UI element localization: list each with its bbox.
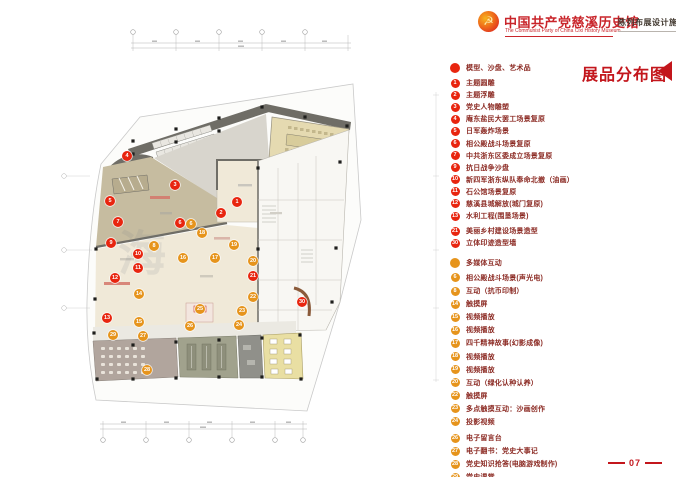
legend-item: 30立体印迹造型墙 xyxy=(444,237,672,249)
legend-number-badge: 5 xyxy=(451,127,460,136)
museum-subtitle: The Communist Party of China Cixi Histor… xyxy=(505,28,613,37)
legend-item: 7中共浙东区委成立场景复原 xyxy=(444,150,672,162)
storage-room xyxy=(238,335,263,378)
legend-number-badge: 2 xyxy=(451,91,460,100)
legend-item: 26电子留言台 xyxy=(444,432,672,445)
legend-number-badge: 14 xyxy=(451,300,460,309)
legend-item-label: 水利工程(围垦场景) xyxy=(466,211,529,221)
legend-number-badge: 24 xyxy=(451,417,460,426)
legend-item-label: 多点触摸互动：沙画创作 xyxy=(466,404,545,414)
legend-number-badge: 30 xyxy=(451,239,460,248)
legend-number-badge: 4 xyxy=(451,115,460,124)
legend-item: 24投影视频 xyxy=(444,415,672,428)
dimension-grid-top xyxy=(131,30,351,51)
legend-number-badge: 17 xyxy=(451,339,460,348)
document-page: 海 43512769101112132130618198161720142225… xyxy=(0,0,676,477)
service-block xyxy=(258,130,349,331)
legend-section-label: 模型、沙盘、艺术品 xyxy=(466,63,531,73)
legend-item: 11石公馆场景复原 xyxy=(444,186,672,198)
legend-item: 4庵东盐民大罢工场景复原 xyxy=(444,113,672,125)
legend-item-label: 视频播放 xyxy=(466,325,495,335)
legend-number-badge: 29 xyxy=(451,473,460,477)
legend-item-label: 党史课堂 xyxy=(466,472,495,477)
legend-number-badge: 12 xyxy=(451,199,460,208)
legend-number-badge: 18 xyxy=(451,352,460,361)
dimension-grid-right xyxy=(433,92,439,382)
legend-item: 21美丽乡村建设场景造型 xyxy=(444,225,672,237)
legend-item-label: 石公馆场景复原 xyxy=(466,187,516,197)
legend-item: 1主题圆雕 xyxy=(444,77,672,89)
legend-item: 2主题浮雕 xyxy=(444,89,672,101)
intro-hall xyxy=(217,160,263,222)
legend-section-label: 多媒体互动 xyxy=(466,258,502,268)
legend-number-badge: 27 xyxy=(451,447,460,456)
small-room xyxy=(186,303,213,322)
legend-number-badge: 6 xyxy=(451,139,460,148)
legend-item: 22触摸屏 xyxy=(444,389,672,402)
legend-number-badge: 9 xyxy=(451,163,460,172)
legend-item-label: 党史人物雕塑 xyxy=(466,102,509,112)
legend-item-label: 立体印迹造型墙 xyxy=(466,238,516,248)
legend-item: 13水利工程(围垦场景) xyxy=(444,210,672,222)
legend-item: 19视频播放 xyxy=(444,363,672,376)
legend-section-header: 多媒体互动 xyxy=(444,256,672,269)
legend-dot-icon xyxy=(450,63,460,73)
page-number: 07 xyxy=(608,458,662,468)
legend-number-badge: 13 xyxy=(451,212,460,221)
workroom xyxy=(178,336,238,378)
classroom xyxy=(93,338,178,381)
legend-number-badge: 19 xyxy=(451,365,460,374)
legend: 模型、沙盘、艺术品1主题圆雕2主题浮雕3党史人物雕塑4庵东盐民大罢工场景复原5日… xyxy=(444,61,672,477)
watermark: 海 xyxy=(118,214,192,284)
legend-item: 23多点触摸互动：沙画创作 xyxy=(444,402,672,415)
legend-item: 8互动（抗币印制） xyxy=(444,285,672,298)
legend-section-header: 模型、沙盘、艺术品 xyxy=(444,61,672,75)
legend-number-badge: 8 xyxy=(451,287,460,296)
legend-item: 17四千精神故事(幻影成像) xyxy=(444,337,672,350)
legend-item-label: 视频播放 xyxy=(466,312,495,322)
legend-number-badge: 16 xyxy=(451,326,460,335)
legend-number-badge: 11 xyxy=(451,187,460,196)
legend-item-label: 电子翻书：党史大事记 xyxy=(466,446,538,456)
legend-number-badge: 26 xyxy=(451,434,460,443)
legend-item-label: 新四军浙东纵队奉命北撤（油画） xyxy=(466,175,574,185)
page-number-rule-right xyxy=(645,462,662,464)
legend-item-label: 电子留言台 xyxy=(466,433,502,443)
legend-number-badge: 10 xyxy=(451,175,460,184)
legend-item-label: 日军轰炸场景 xyxy=(466,126,509,136)
legend-item: 12慈溪县城解放(城门复原) xyxy=(444,198,672,210)
legend-item: 3党史人物雕塑 xyxy=(444,101,672,113)
legend-item-label: 相公殿战斗场景(声光电) xyxy=(466,273,543,283)
legend-item-label: 主题浮雕 xyxy=(466,90,495,100)
office-room xyxy=(263,333,303,379)
legend-item-label: 抗日战争沙盘 xyxy=(466,163,509,173)
legend-item-label: 慈溪县城解放(城门复原) xyxy=(466,199,543,209)
legend-item: 18视频播放 xyxy=(444,350,672,363)
legend-item-label: 投影视频 xyxy=(466,417,495,427)
legend-item: 15视频播放 xyxy=(444,311,672,324)
legend-number-badge: 21 xyxy=(451,227,460,236)
floor-plan xyxy=(0,0,450,477)
legend-number-badge: 23 xyxy=(451,404,460,413)
legend-number-badge: 15 xyxy=(451,313,460,322)
legend-number-badge: 6 xyxy=(451,273,460,282)
legend-item-label: 互动（抗币印制） xyxy=(466,286,524,296)
dimension-grid-bottom xyxy=(100,421,307,442)
legend-item-label: 触摸屏 xyxy=(466,391,488,401)
legend-number-badge: 22 xyxy=(451,391,460,400)
legend-item-label: 美丽乡村建设场景造型 xyxy=(466,226,538,236)
legend-item-label: 视频播放 xyxy=(466,365,495,375)
legend-item-label: 中共浙东区委成立场景复原 xyxy=(466,151,552,161)
legend-item-label: 视频播放 xyxy=(466,352,495,362)
legend-item: 9抗日战争沙盘 xyxy=(444,162,672,174)
legend-item-label: 庵东盐民大罢工场景复原 xyxy=(466,114,545,124)
legend-number-badge: 7 xyxy=(451,151,460,160)
legend-item: 16视频播放 xyxy=(444,324,672,337)
page-number-rule-left xyxy=(608,462,625,464)
party-emblem-icon: ☭ xyxy=(478,11,499,32)
legend-item-label: 相公殿战斗场景复原 xyxy=(466,139,531,149)
legend-item: 5日军轰炸场景 xyxy=(444,125,672,137)
legend-item-label: 互动（绿化认种认养） xyxy=(466,378,538,388)
legend-number-badge: 28 xyxy=(451,460,460,469)
legend-dot-icon xyxy=(450,258,460,268)
legend-number-badge: 20 xyxy=(451,378,460,387)
legend-item: 6相公殿战斗场景复原 xyxy=(444,137,672,149)
document-title: 陈列布展设计施工方案 xyxy=(618,17,676,32)
legend-item: 29党史课堂 xyxy=(444,471,672,477)
legend-number-badge: 1 xyxy=(451,79,460,88)
page-number-value: 07 xyxy=(629,458,641,468)
legend-item-label: 四千精神故事(幻影成像) xyxy=(466,338,543,348)
legend-item: 6相公殿战斗场景(声光电) xyxy=(444,271,672,284)
legend-item: 14触摸屏 xyxy=(444,298,672,311)
legend-item-label: 主题圆雕 xyxy=(466,78,495,88)
legend-item-label: 触摸屏 xyxy=(466,299,488,309)
legend-item-label: 党史知识抢答(电脑游戏制作) xyxy=(466,459,557,469)
legend-item: 10新四军浙东纵队奉命北撤（油画） xyxy=(444,174,672,186)
legend-number-badge: 3 xyxy=(451,103,460,112)
legend-item: 20互动（绿化认种认养） xyxy=(444,376,672,389)
legend-item: 27电子翻书：党史大事记 xyxy=(444,445,672,458)
